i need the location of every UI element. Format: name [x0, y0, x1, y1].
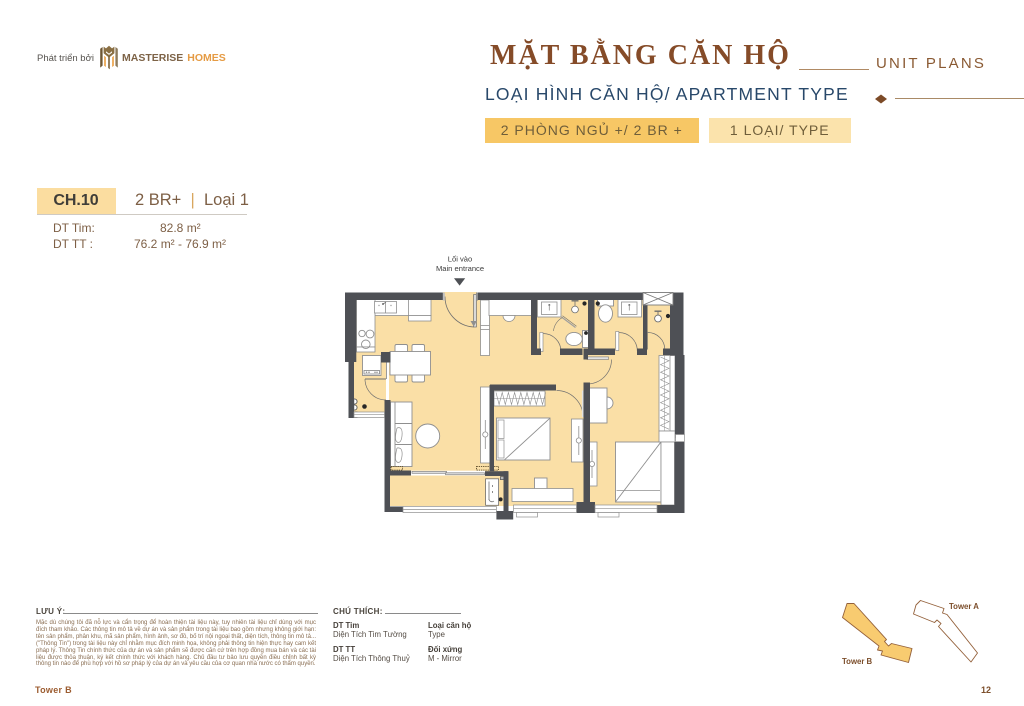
svg-text:Tower A: Tower A [949, 602, 979, 611]
svg-text:Main entrance: Main entrance [436, 264, 484, 273]
svg-text:Lối vào: Lối vào [448, 255, 473, 264]
svg-text:Tower B: Tower B [842, 657, 873, 666]
